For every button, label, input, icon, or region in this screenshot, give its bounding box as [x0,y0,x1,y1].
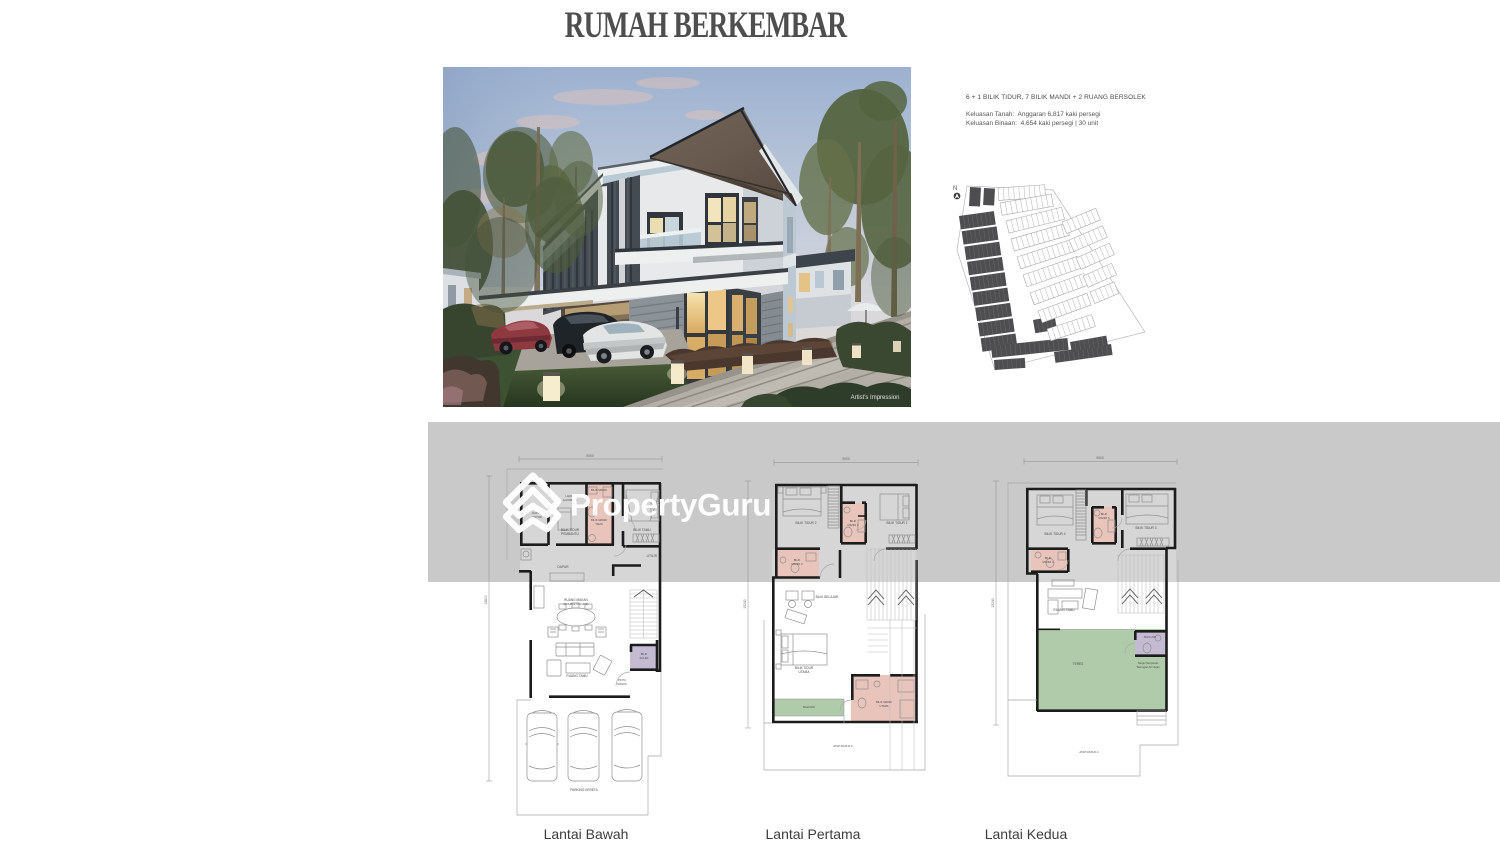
svg-text:BILIK BELAJAR: BILIK BELAJAR [816,595,840,599]
svg-text:9600: 9600 [1096,456,1104,460]
svg-text:13800: 13800 [484,595,488,605]
svg-text:DAPUR: DAPUR [557,565,569,569]
svg-text:9000: 9000 [842,457,850,461]
svg-text:BILIK TIDUR 2: BILIK TIDUR 2 [795,521,816,525]
svg-text:BILIK AIR: BILIK AIR [1144,635,1156,639]
svg-text:PARKING KERETA: PARKING KERETA [570,788,598,792]
svg-text:BALKONI: BALKONI [803,705,815,709]
svg-text:Artist's Impression: Artist's Impression [851,395,900,401]
svg-text:RUANG MAKAN: RUANG MAKAN [564,598,588,602]
svg-text:MANDI 5: MANDI 5 [1099,516,1110,520]
svg-text:BILIK: BILIK [850,519,857,523]
svg-text:BILIK: BILIK [641,652,648,656]
svg-text:N: N [953,186,957,192]
svg-text:Takungan Air Hujan: Takungan Air Hujan [1136,665,1160,669]
svg-text:SOLEK: SOLEK [640,656,649,660]
svg-text:ATAP RATA R.C: ATAP RATA R.C [833,744,852,748]
svg-text:BILIK TIDUR 3: BILIK TIDUR 3 [1135,526,1156,530]
svg-text:ATAP RATA R.C: ATAP RATA R.C [1079,750,1098,754]
svg-text:9000: 9000 [586,454,594,458]
svg-text:UTAMA: UTAMA [879,704,888,708]
svg-text:15240: 15240 [991,598,995,608]
svg-text:PINTU: PINTU [618,678,626,682]
svg-text:RUANG TAMU: RUANG TAMU [566,674,588,678]
svg-text:PEMBANTU: PEMBANTU [561,532,579,536]
svg-text:UTAMA: UTAMA [799,670,811,674]
svg-text:BILIK TAMU: BILIK TAMU [633,528,651,532]
svg-text:TAMU: TAMU [595,522,602,526]
svg-text:TERES: TERES [1073,662,1084,666]
svg-text:MASUK: MASUK [617,682,627,686]
svg-text:BILIK TIDUR 4: BILIK TIDUR 4 [1044,532,1065,536]
svg-text:MANDI 3: MANDI 3 [792,562,803,566]
svg-text:UTILITI: UTILITI [647,554,658,558]
svg-text:BILIK TIDUR 1: BILIK TIDUR 1 [886,521,907,525]
svg-text:Tangki Simpanan: Tangki Simpanan [1138,661,1159,665]
svg-text:MANDI 2: MANDI 2 [848,523,859,527]
svg-text:15240: 15240 [743,599,747,609]
svg-text:RUANG TAMU: RUANG TAMU [1053,608,1075,612]
svg-text:BILIK: BILIK [794,558,801,562]
svg-text:(DOUBLE VOLUME): (DOUBLE VOLUME) [564,602,589,606]
svg-text:MANDI 4: MANDI 4 [1043,560,1054,564]
svg-text:BILIK: BILIK [1101,512,1108,516]
svg-text:BILIK MANDI: BILIK MANDI [876,700,892,704]
svg-text:PropertyGuru: PropertyGuru [570,487,771,523]
svg-text:BILIK: BILIK [1045,556,1052,560]
